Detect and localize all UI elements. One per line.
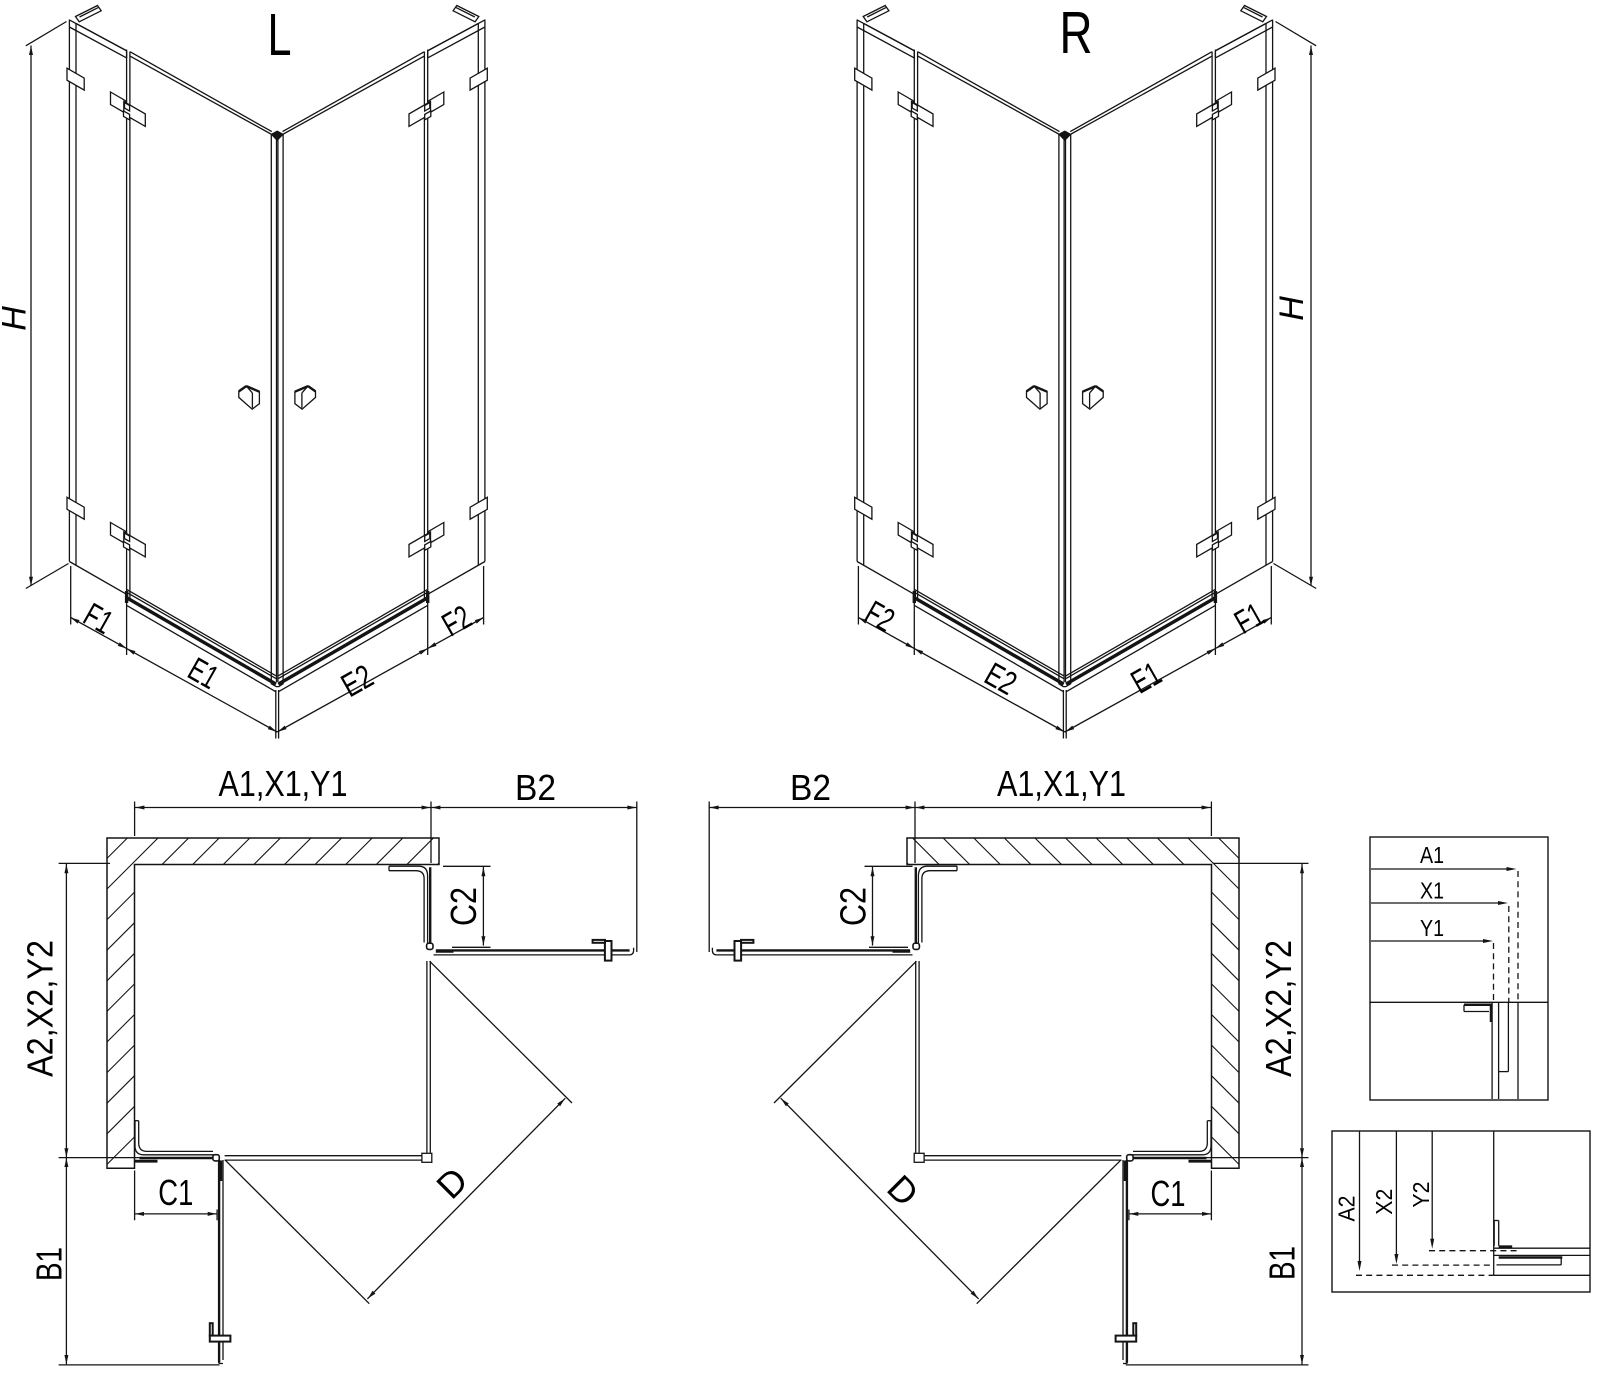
svg-text:Y2: Y2	[1408, 1182, 1434, 1208]
svg-text:B1: B1	[1262, 1246, 1303, 1280]
svg-text:A2,X2,Y2: A2,X2,Y2	[20, 940, 61, 1077]
svg-text:C1: C1	[158, 1172, 193, 1213]
svg-text:H: H	[1273, 296, 1311, 321]
svg-text:B2: B2	[790, 767, 831, 808]
svg-text:X1: X1	[1420, 878, 1444, 904]
svg-text:R: R	[1060, 0, 1093, 66]
svg-text:B2: B2	[515, 767, 556, 808]
svg-text:A1: A1	[1420, 842, 1444, 868]
svg-text:C2: C2	[833, 887, 874, 926]
svg-text:A1,X1,Y1: A1,X1,Y1	[219, 763, 348, 804]
svg-text:C1: C1	[1151, 1173, 1186, 1214]
svg-text:Y1: Y1	[1420, 915, 1444, 941]
svg-text:A2,X2,Y2: A2,X2,Y2	[1258, 940, 1299, 1077]
svg-text:X2: X2	[1371, 1189, 1397, 1215]
svg-text:A1,X1,Y1: A1,X1,Y1	[997, 763, 1126, 804]
svg-text:C2: C2	[443, 887, 484, 926]
svg-text:L: L	[268, 2, 292, 68]
svg-text:A2: A2	[1333, 1196, 1359, 1222]
svg-text:H: H	[0, 306, 34, 331]
svg-text:B1: B1	[28, 1247, 69, 1281]
